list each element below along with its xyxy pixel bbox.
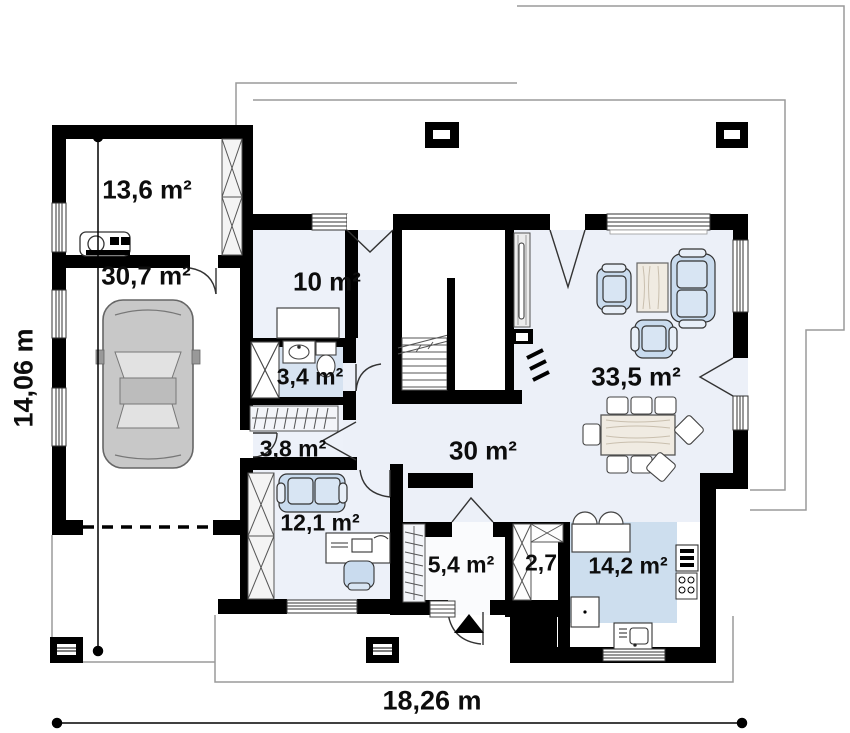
coffee-table-icon bbox=[637, 263, 668, 312]
room-label-closet: 2,7 bbox=[525, 550, 557, 577]
sink-icon bbox=[283, 341, 315, 363]
armchair-icon bbox=[597, 264, 631, 314]
floor-plan: 13,6 m² 30,7 m² 10 m² 3,4 m² 3,8 m² 12,1… bbox=[0, 0, 850, 733]
fridge-icon bbox=[676, 545, 698, 571]
window-kitchen-south bbox=[603, 649, 665, 661]
door-utility-garage bbox=[190, 255, 218, 294]
roof-vent-icons bbox=[425, 122, 748, 148]
car-icon bbox=[96, 300, 200, 468]
room-label-office: 12,1 m² bbox=[280, 510, 359, 537]
window-garage-west-1 bbox=[52, 290, 66, 338]
office-chair-icon bbox=[344, 561, 374, 590]
room-label-garage: 30,7 m² bbox=[101, 261, 191, 292]
window-garage-west-2 bbox=[52, 388, 66, 446]
shower-icon bbox=[251, 342, 279, 398]
sofa-icon bbox=[671, 249, 715, 328]
armchair2-icon bbox=[631, 320, 677, 358]
boiler-icon bbox=[80, 232, 130, 256]
entrance-steps-icon bbox=[430, 601, 455, 617]
window-living-east-1 bbox=[733, 240, 748, 312]
window-living-north bbox=[607, 214, 710, 234]
room-label-vestibule: 5,4 m² bbox=[428, 552, 494, 579]
dresser-icon bbox=[277, 308, 339, 338]
kitchen-cabinet-icon bbox=[571, 597, 599, 627]
duct-box-slot bbox=[516, 333, 528, 341]
dining-table-icon bbox=[601, 415, 675, 455]
hob-icon bbox=[676, 573, 697, 599]
window-utility-west bbox=[52, 203, 66, 252]
entrance-arrow-icon bbox=[454, 614, 484, 633]
room-label-living: 33,5 m² bbox=[591, 362, 681, 393]
dimension-label-width: 18,26 m bbox=[382, 686, 481, 717]
room-label-utility: 13,6 m² bbox=[102, 175, 192, 206]
kitchen-counter-icon bbox=[572, 512, 630, 552]
radiator-cabinet-icon bbox=[514, 233, 530, 327]
room-label-bedroom: 10 m² bbox=[293, 267, 361, 298]
window-bedroom-north bbox=[312, 214, 347, 230]
office-wardrobe-icon bbox=[248, 473, 274, 599]
wardrobe-rail-icon bbox=[250, 406, 338, 431]
vestibule-wardrobe-icon bbox=[403, 524, 425, 602]
room-label-bathroom: 3,4 m² bbox=[277, 364, 343, 391]
dimension-line-vertical bbox=[94, 133, 103, 656]
room-label-kitchen: 14,2 m² bbox=[588, 553, 667, 580]
room-label-hall-small: 3,8 m² bbox=[260, 436, 326, 463]
kitchen-sink-icon bbox=[614, 623, 652, 649]
stair-partition bbox=[447, 278, 455, 390]
window-living-east-2 bbox=[733, 396, 748, 430]
window-office-south bbox=[287, 600, 357, 613]
office-sofa-icon bbox=[277, 474, 347, 512]
dimension-label-height: 14,06 m bbox=[9, 328, 40, 427]
floor-plan-graphic bbox=[0, 0, 850, 733]
desk-icon bbox=[326, 533, 390, 563]
dimension-line-horizontal bbox=[53, 719, 747, 728]
room-label-hall: 30 m² bbox=[449, 436, 517, 467]
duct-shaft-icon bbox=[222, 139, 242, 255]
